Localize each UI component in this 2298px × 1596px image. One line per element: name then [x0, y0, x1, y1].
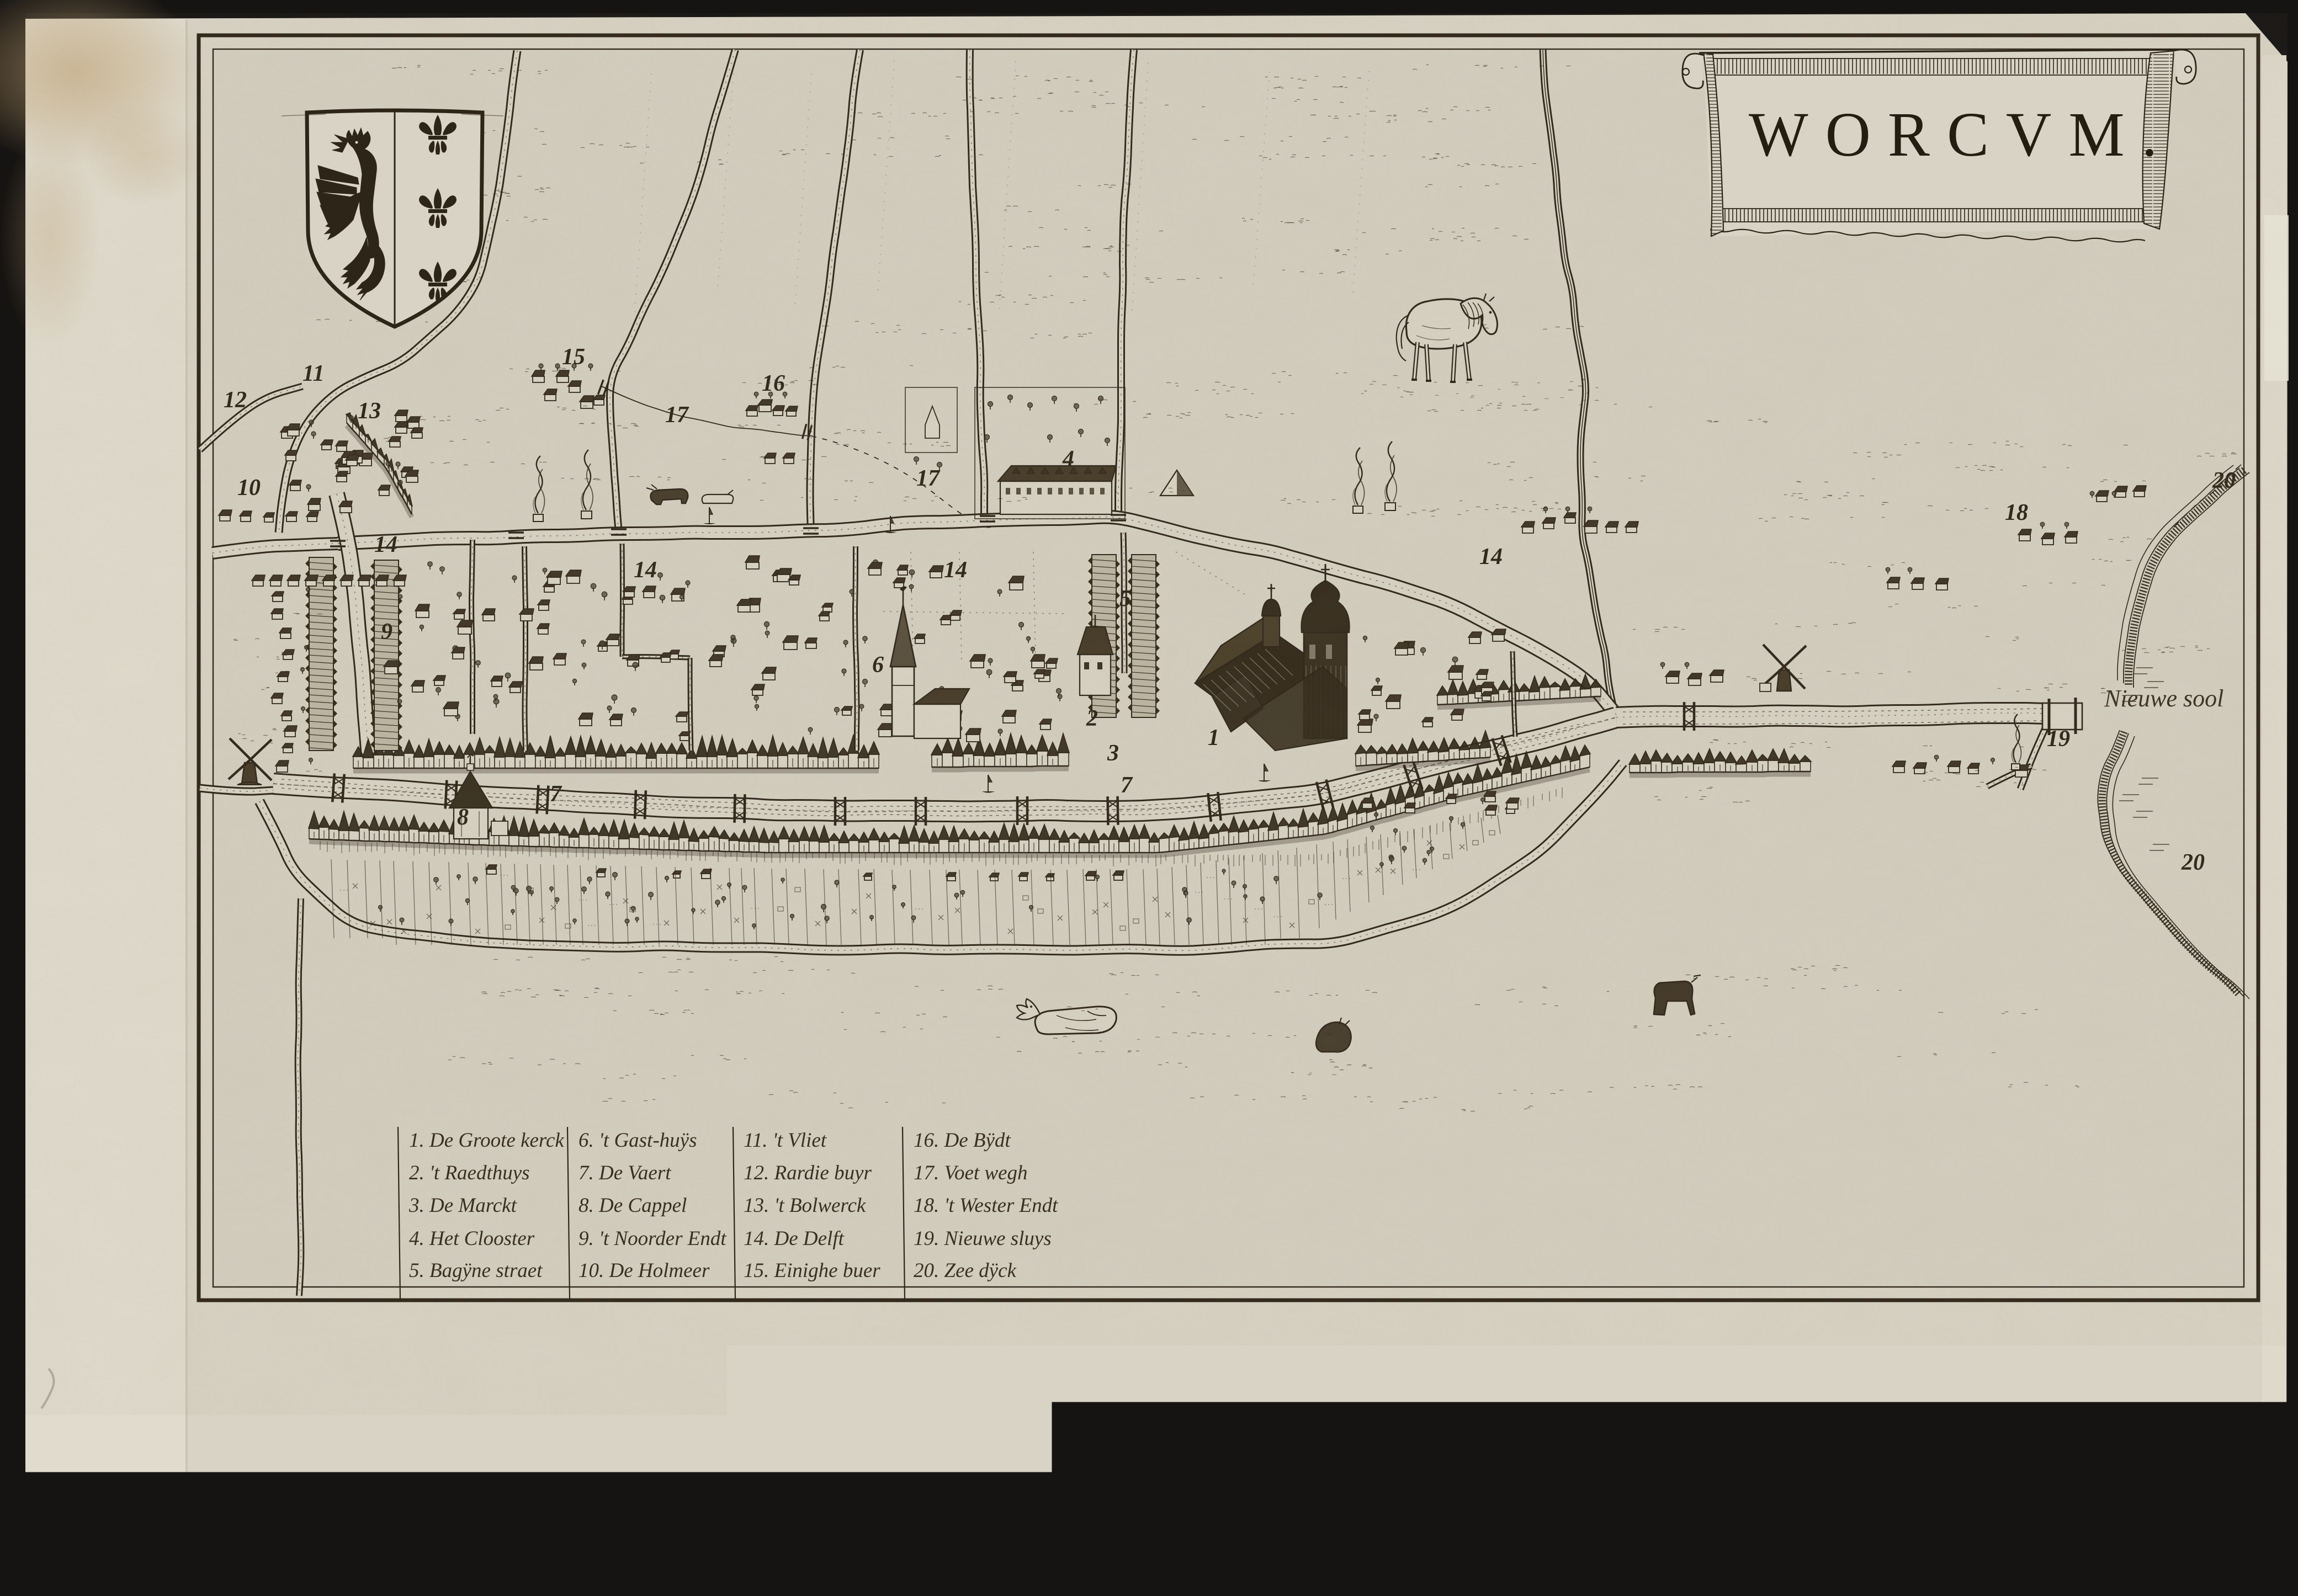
svg-text:18. 't Wester Endt: 18. 't Wester Endt [914, 1194, 1059, 1217]
svg-text:9. 't Noorder Endt: 9. 't Noorder Endt [579, 1227, 727, 1250]
svg-text:10. De Holmeer: 10. De Holmeer [579, 1259, 710, 1282]
svg-text:4. Het Clooster: 4. Het Clooster [409, 1227, 535, 1250]
svg-text:983: 983 [2108, 1384, 2193, 1449]
svg-text:1. De Groote kerck: 1. De Groote kerck [409, 1129, 564, 1152]
svg-text:8. De Cappel: 8. De Cappel [579, 1194, 687, 1217]
svg-text:16. De Bÿdt: 16. De Bÿdt [914, 1129, 1011, 1152]
svg-text:13. 't Bolwerck: 13. 't Bolwerck [744, 1194, 866, 1217]
svg-text:7. De Vaert: 7. De Vaert [579, 1162, 672, 1184]
svg-text:20. Zee dÿck: 20. Zee dÿck [914, 1259, 1017, 1282]
svg-text:6. 't Gast-huÿs: 6. 't Gast-huÿs [579, 1129, 697, 1152]
svg-text:2. 't Raedthuys: 2. 't Raedthuys [409, 1162, 530, 1184]
svg-text:5. Bagÿne straet: 5. Bagÿne straet [409, 1259, 543, 1282]
svg-text:15. Einighe buer: 15. Einighe buer [744, 1259, 880, 1282]
svg-text:14. De Delft: 14. De Delft [744, 1227, 845, 1250]
svg-text:3. De Marckt: 3. De Marckt [408, 1194, 518, 1217]
svg-text:17. Voet wegh: 17. Voet wegh [914, 1162, 1028, 1184]
svg-text:WORCVM.: WORCVM. [1749, 99, 2174, 169]
svg-text:12. Rardie buyr: 12. Rardie buyr [744, 1162, 872, 1184]
svg-text:19. Nieuwe sluys: 19. Nieuwe sluys [914, 1227, 1052, 1250]
svg-text:11. 't Vliet: 11. 't Vliet [744, 1129, 827, 1152]
